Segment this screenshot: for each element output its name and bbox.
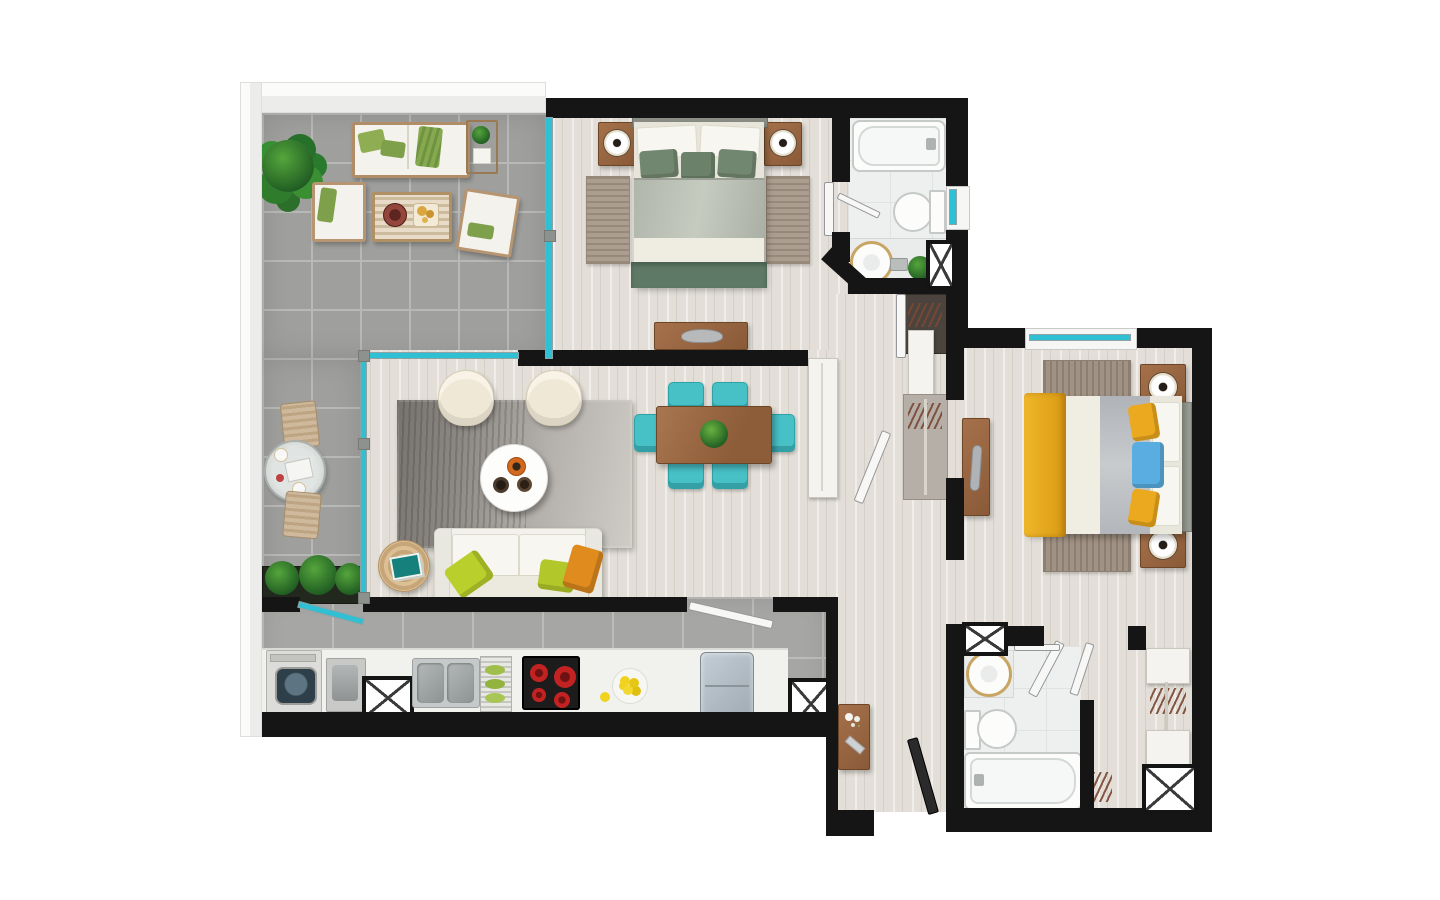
closet-shelf-top xyxy=(1146,648,1190,684)
dining-cabinet-line xyxy=(821,363,823,491)
lemon-single xyxy=(600,692,610,702)
sliding-glass-living-v xyxy=(361,353,366,600)
burner-1 xyxy=(530,664,548,682)
terrace-side-table xyxy=(466,120,498,174)
washer-controls xyxy=(270,654,316,662)
bed1-nightstand-left xyxy=(598,122,636,166)
green-plates xyxy=(485,665,505,675)
hall-closet-lower xyxy=(903,394,948,500)
bed1-lamp-right xyxy=(770,130,796,156)
bath1-window xyxy=(950,190,956,224)
bed1-runner-green xyxy=(631,262,767,288)
bed1-lamp-left xyxy=(604,130,630,156)
bed2-rug-bottom xyxy=(1043,532,1131,572)
magazine xyxy=(284,458,314,483)
coffee-table xyxy=(480,444,548,512)
outdoor-sofa xyxy=(352,122,470,178)
double-sink xyxy=(412,658,480,708)
terrace-lounge-chair-2 xyxy=(455,188,520,258)
armchair-2 xyxy=(526,370,582,426)
bed1-duvet-grey xyxy=(634,178,764,242)
outdoor-sofa-pillow-2 xyxy=(380,139,406,158)
glass-post-2 xyxy=(358,350,370,362)
terrace-potted-plant xyxy=(262,140,314,192)
dining-chair-bottom-2 xyxy=(712,460,748,489)
bed1-sheet-cream xyxy=(634,238,764,264)
wall-living-bed1 xyxy=(518,350,808,366)
hall-closet-rod xyxy=(924,399,927,495)
duct-shaft-bath1 xyxy=(926,240,956,290)
bed2-throw-yellow xyxy=(1024,393,1066,537)
wall-kitchen-top-c xyxy=(773,597,836,612)
wall-top xyxy=(546,98,968,118)
outdoor-sofa-throw xyxy=(415,126,443,168)
toilet2-bowl xyxy=(977,709,1017,749)
bed1-pillow-green-2 xyxy=(681,152,715,180)
lounge1-pillow xyxy=(317,187,338,223)
dining-chair-bottom-1 xyxy=(668,460,704,489)
dining-centerpiece xyxy=(700,420,728,448)
wall-right-outer xyxy=(1192,348,1212,830)
fridge-split xyxy=(705,685,749,687)
bed2-sheet-cream xyxy=(1066,396,1100,534)
bed2-pillow-blue xyxy=(1132,442,1164,488)
bathtub1-faucet-icon xyxy=(926,138,936,150)
armchair-1 xyxy=(438,370,494,426)
wall-kitchen-top-b xyxy=(363,597,687,612)
terrace-lounge-chair-1 xyxy=(312,182,366,242)
parapet-left xyxy=(240,82,262,737)
bed2-window xyxy=(1030,335,1130,340)
wall-bath1-right xyxy=(946,118,968,348)
bed1-rug-right xyxy=(766,176,810,264)
bed1-pillow-green-1 xyxy=(639,149,679,180)
snacks xyxy=(417,206,427,216)
breakfast-plate-1 xyxy=(274,448,288,462)
burner-3 xyxy=(532,688,546,702)
jute-side-table xyxy=(378,540,430,592)
closet-hangers xyxy=(1150,688,1186,714)
laundry-basin xyxy=(326,658,366,712)
side-table-towel xyxy=(473,148,491,164)
bed1 xyxy=(634,122,764,286)
wall-wing-top-left xyxy=(946,328,1026,348)
sliding-glass-living-h xyxy=(365,353,518,358)
floor-plan xyxy=(0,0,1440,900)
bed1-dresser xyxy=(654,322,748,350)
wall-hall-left xyxy=(826,597,838,812)
laundry-basin-inner xyxy=(332,665,358,701)
bed1-nightstand-right xyxy=(764,122,802,166)
outdoor-sofa-cushion-split xyxy=(407,125,409,169)
tray-dish xyxy=(383,203,407,227)
console-item xyxy=(845,736,865,755)
lemon-plate xyxy=(612,668,648,704)
coffee-bowl-orange xyxy=(507,457,526,476)
bistro-chair-bottom xyxy=(282,491,322,540)
washing-machine xyxy=(266,650,322,714)
planter-plant-2 xyxy=(299,555,337,595)
desk-object xyxy=(969,445,982,492)
bathtub-1 xyxy=(852,120,946,172)
side-table-plant xyxy=(472,126,490,144)
hall-wardrobe-white xyxy=(908,330,934,396)
glass-post-1 xyxy=(544,230,556,242)
sink-basin-2 xyxy=(447,663,474,703)
glass-post-4 xyxy=(358,592,370,604)
lemons xyxy=(620,676,630,686)
wall-kitchen-bottom xyxy=(253,712,838,737)
burner-4 xyxy=(554,692,570,708)
duct-shaft-bath2 xyxy=(962,622,1008,656)
wall-entry-bottom xyxy=(826,810,874,836)
bed2-lamp-bottom xyxy=(1149,531,1177,559)
dining-table xyxy=(656,406,772,464)
burner-2 xyxy=(554,666,576,688)
lounge2-pillow xyxy=(467,222,495,240)
bath1-faucet xyxy=(890,258,908,271)
sofa xyxy=(434,528,602,604)
duct-shaft-closet xyxy=(1142,764,1198,814)
wall-bath2-right xyxy=(1080,700,1094,808)
dish-rack xyxy=(480,656,512,712)
toilet1-tank xyxy=(929,190,946,234)
console-flowers xyxy=(845,713,853,721)
sink-basin-1 xyxy=(417,663,444,703)
bed1-pillow-green-3 xyxy=(717,149,757,180)
bathtub2-faucet-icon xyxy=(974,774,984,786)
snack-plate xyxy=(413,203,439,227)
wall-bath1-left-upper xyxy=(832,118,850,182)
toilet1-bowl xyxy=(893,192,933,232)
wall-hall-right-upper xyxy=(946,348,964,400)
bed2-desk xyxy=(962,418,990,516)
bed2-pillow-yellow-1 xyxy=(1127,402,1160,442)
bath2-basin xyxy=(966,651,1012,697)
bed2-pillow-yellow-2 xyxy=(1127,488,1160,528)
planter-plant-1 xyxy=(265,561,299,595)
bed2 xyxy=(1026,396,1182,534)
closet-shelf-bottom xyxy=(1146,730,1190,766)
breakfast-cup xyxy=(276,474,284,482)
washer-door xyxy=(275,667,317,705)
cooktop xyxy=(522,656,580,710)
jute-book xyxy=(389,553,423,581)
toilet-1 xyxy=(893,190,943,230)
bed1-rug-left xyxy=(586,176,630,264)
bedroom1-nook-door-leaf xyxy=(896,294,906,358)
bath1-door-leaf xyxy=(824,182,834,236)
glass-post-3 xyxy=(358,438,370,450)
hall-closet-hangers xyxy=(908,303,942,327)
wall-wing-top-right xyxy=(1134,328,1212,348)
entry-console xyxy=(838,704,870,770)
bathtub-2 xyxy=(964,752,1082,810)
parapet-top xyxy=(240,82,546,113)
bathtub2-basin xyxy=(970,758,1076,804)
dining-cabinet xyxy=(808,358,838,498)
coffee-bowl-dark2 xyxy=(517,477,532,492)
wall-closet-stub xyxy=(1128,626,1146,650)
terrace-coffee-table xyxy=(372,192,452,242)
coffee-bowl-dark1 xyxy=(493,477,509,493)
toilet-2 xyxy=(964,708,1016,748)
dresser-laptop xyxy=(681,329,723,343)
wall-hall-right-mid xyxy=(946,478,964,560)
